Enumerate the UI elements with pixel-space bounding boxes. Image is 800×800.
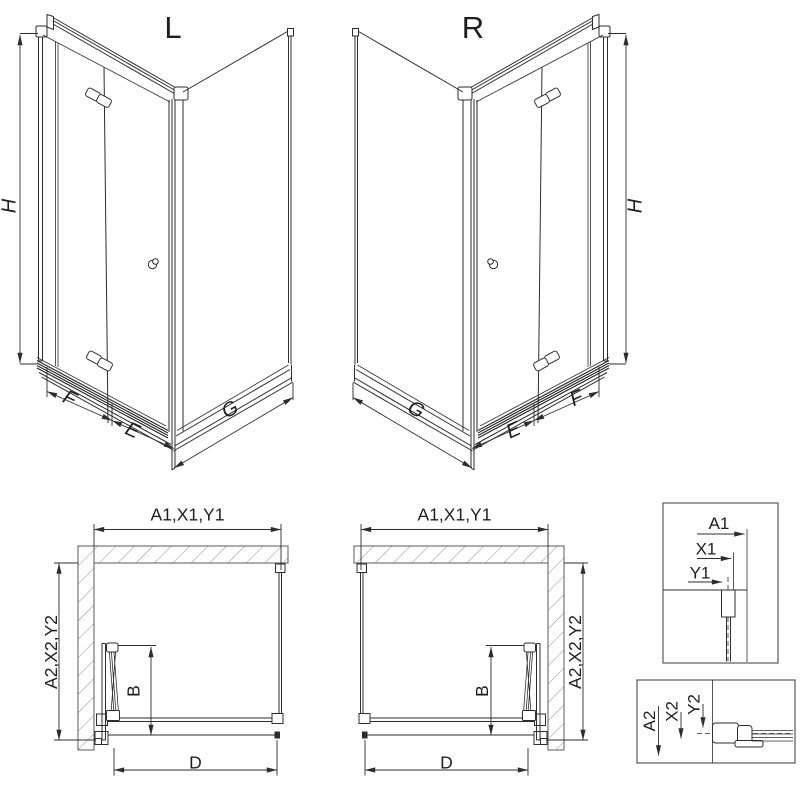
detail-box-width-refs: A1 X1 Y1 <box>663 503 778 663</box>
plan-entry-label-right: D <box>440 753 453 773</box>
detail-label-a2: A2 <box>640 711 659 732</box>
glass-section <box>752 731 793 742</box>
detail-label-y2: Y2 <box>685 694 704 715</box>
plan-fold-label-right: B <box>472 685 492 697</box>
plan-depth-label-left: A2,X2,Y2 <box>41 615 61 689</box>
detail-label-a1: A1 <box>709 514 730 533</box>
plan-wall-side <box>548 546 564 750</box>
plan-view-right: A1,X1,Y1 A2,X2,Y2 B D <box>354 505 588 776</box>
plan-wall-top <box>354 546 564 563</box>
dim-label-e-left: E <box>122 418 144 444</box>
dim-label-e-right: E <box>503 417 525 443</box>
detail-box-border <box>637 680 795 763</box>
plan-wall-top <box>78 546 288 563</box>
plan-depth-label-right: A2,X2,Y2 <box>565 615 585 689</box>
model-title-right: R <box>462 10 484 45</box>
dim-label-h-right: H <box>625 198 647 213</box>
wall-profile-section <box>722 590 736 617</box>
dim-label-f-left: F <box>59 386 81 412</box>
iso-view-right: R H F E G <box>353 10 647 470</box>
iso-view-left: L H F E G <box>0 10 294 470</box>
plan-view-left: A1,X1,Y1 A2,X2,Y2 B D <box>41 505 288 776</box>
model-title-left: L <box>164 10 181 45</box>
dim-label-g-right: G <box>404 396 428 423</box>
shower-enclosure-technical-diagram: L H F E G R H F E G A1,X1,Y1 A2,X2,Y2 B … <box>0 0 800 800</box>
plan-fold-label-left: B <box>124 685 144 697</box>
detail-label-x2: X2 <box>663 701 682 722</box>
dim-label-h-left: H <box>0 198 21 213</box>
detail-label-x1: X1 <box>696 540 717 559</box>
glass-section <box>727 617 731 662</box>
plan-width-label-right: A1,X1,Y1 <box>418 505 492 525</box>
plan-wall-side <box>78 546 94 750</box>
dim-label-g-left: G <box>218 396 242 423</box>
plan-entry-label-left: D <box>189 753 202 773</box>
wall-profile-section <box>713 723 739 743</box>
detail-box-depth-refs: A2 X2 Y2 <box>637 680 795 763</box>
detail-label-y1: Y1 <box>690 564 711 583</box>
plan-width-label-left: A1,X1,Y1 <box>151 505 225 525</box>
profile-lip-section <box>735 741 763 748</box>
